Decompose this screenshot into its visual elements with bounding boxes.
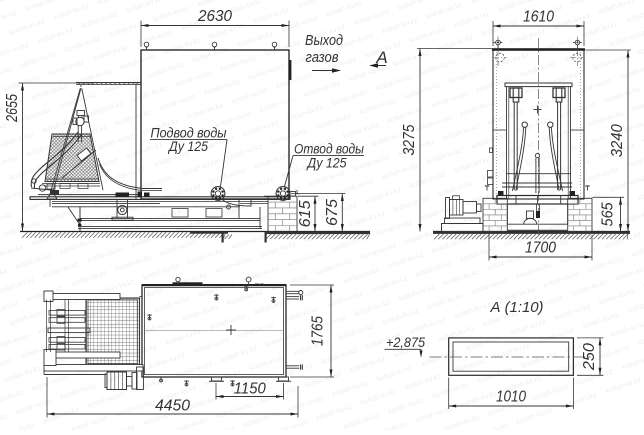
svg-text:2630: 2630 <box>197 8 232 25</box>
svg-text:Ду 125: Ду 125 <box>167 139 208 154</box>
svg-text:3275: 3275 <box>401 124 418 155</box>
svg-text:615: 615 <box>297 200 314 227</box>
svg-text:Отвод воды: Отвод воды <box>294 142 364 157</box>
svg-text:675: 675 <box>324 199 341 226</box>
svg-text:1700: 1700 <box>525 240 556 257</box>
svg-text:1150: 1150 <box>234 381 266 398</box>
svg-text:А (1:10): А (1:10) <box>490 299 544 316</box>
svg-text:Выход: Выход <box>305 32 343 49</box>
svg-text:Ду 125: Ду 125 <box>306 156 347 171</box>
svg-text:1010: 1010 <box>496 389 526 406</box>
svg-text:1610: 1610 <box>523 9 554 26</box>
svg-text:+2,875: +2,875 <box>386 335 425 350</box>
svg-text:газов: газов <box>306 49 339 66</box>
svg-text:565: 565 <box>600 202 617 226</box>
svg-text:2655: 2655 <box>4 94 21 123</box>
svg-text:3240: 3240 <box>609 124 626 157</box>
svg-text:1765: 1765 <box>310 316 327 346</box>
svg-text:4450: 4450 <box>155 398 190 415</box>
svg-text:250: 250 <box>581 343 598 371</box>
